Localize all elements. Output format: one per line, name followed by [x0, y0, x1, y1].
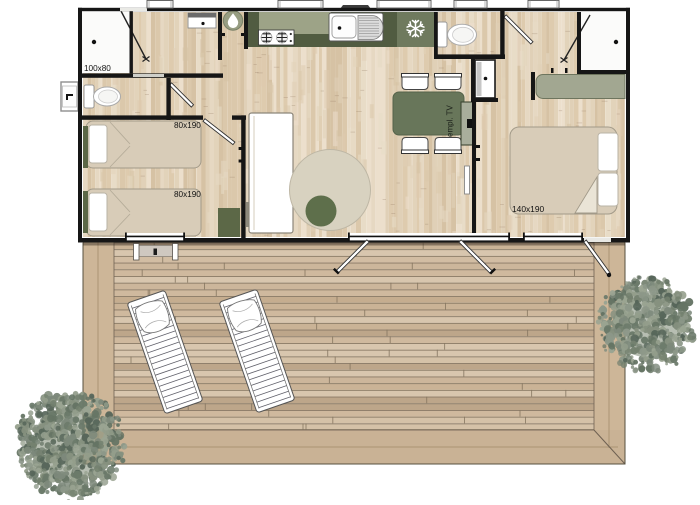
svg-text:80x190: 80x190 [174, 190, 201, 199]
svg-text:empl. TV: empl. TV [446, 104, 455, 137]
svg-text:80x190: 80x190 [174, 121, 201, 130]
svg-text:100x80: 100x80 [84, 64, 111, 73]
svg-text:140x190: 140x190 [512, 204, 544, 214]
